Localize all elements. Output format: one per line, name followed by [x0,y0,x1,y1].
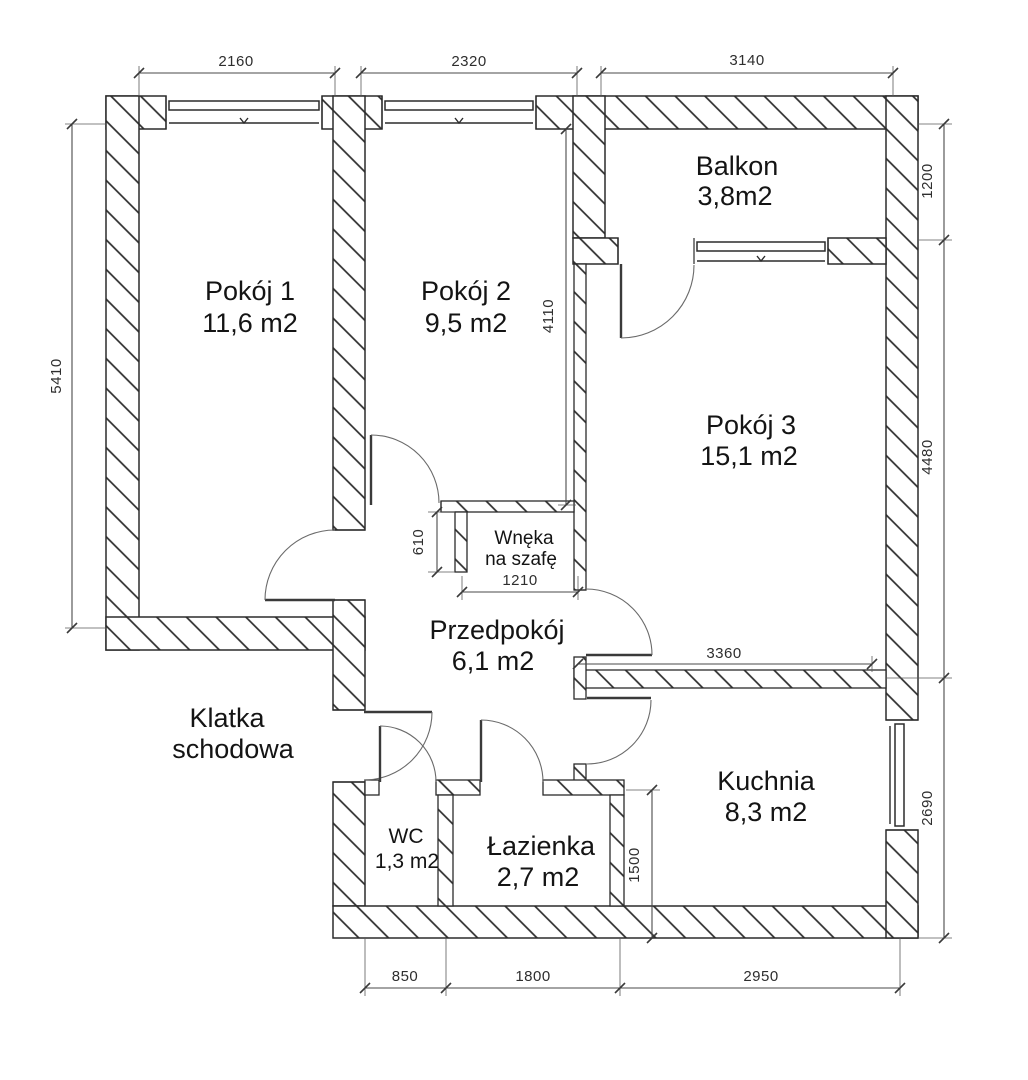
room-label-klatka-line2: schodowa [172,734,295,764]
dim-label-1200: 1200 [919,163,936,198]
wall-pokoj2-bottom [441,501,574,512]
wall-pokoj2-pokoj3 [574,264,586,590]
wall-spine-lower [333,782,365,906]
dim-label-1800: 1800 [515,968,550,985]
door-wc [380,726,436,782]
room-label-lazienka-area: 2,7 m2 [497,862,580,892]
wall-spine-mid [333,600,365,710]
room-label-balkon-name: Balkon [696,151,779,181]
wall-lazienka-kuchnia [610,795,624,906]
wall-spine-upper [333,96,365,530]
room-label-przedpokoj-area: 6,1 m2 [452,646,535,676]
dim-label-2320: 2320 [451,53,486,70]
dim-label-850: 850 [392,968,419,985]
wall-balkon-left [573,96,605,238]
dim-label-1210: 1210 [502,572,537,589]
room-label-pokoj3-area: 15,1 m2 [700,441,798,471]
room-label-kuchnia-area: 8,3 m2 [725,797,808,827]
room-label-kuchnia-name: Kuchnia [717,766,816,796]
door-pokoj3 [574,589,652,655]
room-label-pokoj1-area: 11,6 m2 [202,308,298,338]
door-kuchnia [587,698,651,764]
wall-right-upper [886,96,918,720]
room-label-wc-name: WC [389,825,424,848]
wall-wc-top-2 [436,780,480,795]
door-pokoj2 [371,435,441,512]
window-pokoj2 [382,96,536,129]
room-label-pokoj2-name: Pokój 2 [421,276,511,306]
dim-label-2160: 2160 [218,53,253,70]
room-label-pokoj1-name: Pokój 1 [205,276,295,306]
floor-plan-page: Pokój 1 11,6 m2 Pokój 2 9,5 m2 Balkon 3,… [0,0,1028,1080]
room-label-lazienka-name: Łazienka [487,831,596,861]
room-label-wneka-line2: na szafę [485,549,557,570]
floor-plan-drawing: Pokój 1 11,6 m2 Pokój 2 9,5 m2 Balkon 3,… [0,0,1028,1080]
room-label-klatka-line1: Klatka [189,703,265,733]
dim-label-610: 610 [410,529,427,556]
dim-label-5410: 5410 [48,358,65,393]
door-pokoj1 [265,530,365,600]
room-label-wc-area: 1,3 m2 [375,850,439,873]
wall-wneka-left [455,512,467,572]
dim-label-3140: 3140 [729,52,764,69]
wall-wc-lazienka [438,795,453,906]
room-label-balkon-area: 3,8m2 [697,181,772,211]
wall-right-lower [886,830,918,938]
dim-label-2690: 2690 [919,790,936,825]
dim-label-1500: 1500 [626,847,643,882]
wall-pokoj1-bottom [106,617,365,650]
room-label-pokoj2-area: 9,5 m2 [425,308,508,338]
wall-kuchnia-jamb-top [574,657,586,699]
windows [166,96,918,830]
wall-kuchnia-jamb-bottom [574,764,586,782]
dim-label-2950: 2950 [743,968,778,985]
window-pokoj1 [166,96,322,129]
wall-bottom [333,906,918,938]
wall-pokoj3-kuchnia [574,670,886,688]
room-label-przedpokoj-name: Przedpokój [429,615,564,645]
dim-label-4110: 4110 [540,299,557,333]
door-balkon [618,238,694,338]
wall-balkon-bottom-right [828,238,886,264]
window-kuchnia [886,720,918,830]
room-labels: Pokój 1 11,6 m2 Pokój 2 9,5 m2 Balkon 3,… [172,151,816,892]
wall-left [106,96,139,650]
wall-lazienka-top [543,780,624,795]
room-label-pokoj3-name: Pokój 3 [706,410,796,440]
dim-label-3360: 3360 [706,645,741,662]
room-label-wneka-line1: Wnęka [494,528,554,549]
dim-label-4480: 4480 [919,439,936,474]
door-entrance [333,710,432,782]
wall-wc-top-1 [365,780,379,795]
wall-balkon-bottom-left [573,238,618,264]
window-balkon [694,238,828,264]
door-lazienka [481,720,543,782]
